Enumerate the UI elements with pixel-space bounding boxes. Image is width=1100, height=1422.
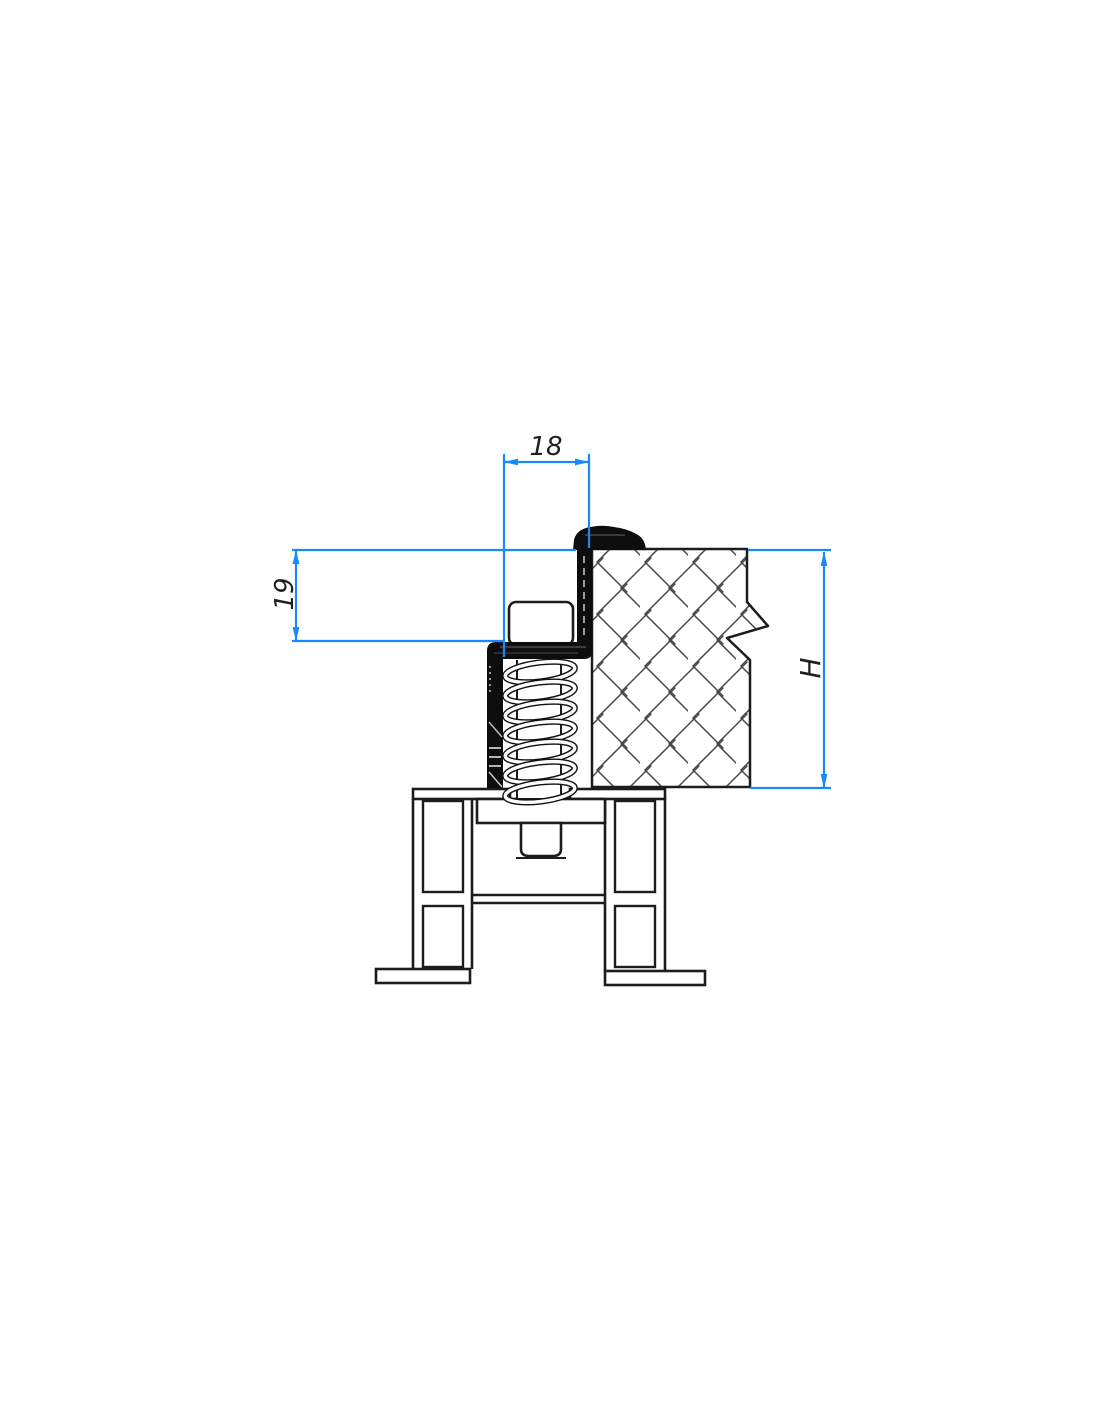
- dim-label-19: 19: [270, 577, 300, 610]
- arrow-down-icon: [293, 627, 300, 641]
- dim-label-18: 18: [529, 432, 562, 462]
- profile-foot-right: [605, 971, 705, 985]
- door-leaf-panel: [592, 549, 768, 787]
- arrow-right-icon: [575, 459, 589, 466]
- profile-foot-left: [376, 969, 470, 983]
- profile-cavity-left-lower: [423, 906, 463, 967]
- gasket-top-bulge: [573, 526, 646, 550]
- arrow-left-icon: [504, 459, 518, 466]
- profile-cavity-right-upper: [615, 801, 655, 892]
- door-leaf-panel-group: [592, 549, 768, 787]
- door-seal-section-drawing: 18 19 H: [0, 0, 1100, 1422]
- arrow-up-icon: [293, 550, 300, 564]
- profile-top-plate-right: [570, 789, 665, 799]
- screw-shank: [521, 823, 561, 856]
- technical-drawing-canvas: 18 19 H: [0, 0, 1100, 1422]
- seal-plunger: [509, 602, 573, 645]
- profile-cavity-right-lower: [615, 906, 655, 967]
- arrow-down-icon: [821, 774, 828, 788]
- profile-top-plate-left: [413, 789, 510, 799]
- threshold-profile: [376, 789, 705, 985]
- profile-cavity-left-upper: [423, 801, 463, 892]
- spring-mechanism: [504, 658, 576, 805]
- arrow-up-icon: [821, 552, 828, 566]
- dim-label-H: H: [794, 657, 827, 678]
